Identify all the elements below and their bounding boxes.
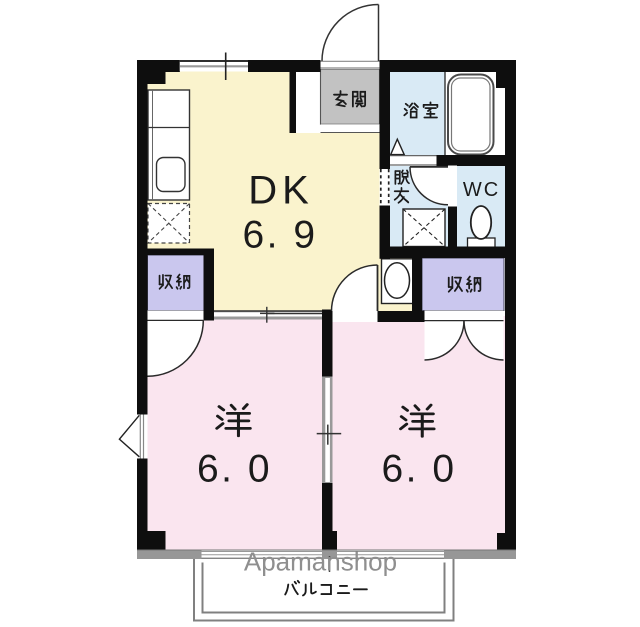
svg-text:6. 9: 6. 9 — [242, 214, 317, 257]
svg-text:6. 0: 6. 0 — [381, 447, 456, 490]
svg-text:Apamanshop: Apamanshop — [244, 546, 397, 576]
svg-text:6. 0: 6. 0 — [197, 447, 272, 490]
svg-text:WC: WC — [463, 179, 500, 201]
svg-text:DK: DK — [248, 168, 314, 212]
